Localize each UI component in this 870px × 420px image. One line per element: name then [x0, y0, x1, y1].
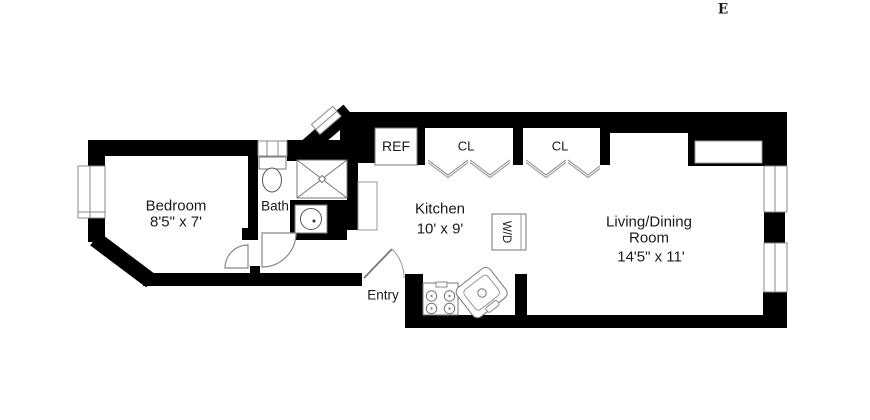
wall-left-of-ref — [340, 112, 377, 163]
window-living-1 — [764, 166, 787, 212]
window-bath — [258, 141, 287, 156]
refrigerator-label: REF — [382, 138, 410, 154]
wall-kitchen-living-stub — [515, 274, 527, 322]
compass-east-label: E — [718, 2, 728, 18]
wall-top-living — [600, 112, 787, 133]
kitchen-counter — [358, 182, 377, 230]
bath-label: Bath — [261, 199, 289, 214]
door-entry — [364, 249, 404, 278]
wall-top-kitchen — [340, 112, 610, 128]
wall-bedroom-top — [88, 140, 258, 156]
toilet — [263, 168, 282, 192]
living-dining-label-line1: Living/Dining — [606, 213, 692, 230]
kitchen-dims: 10' x 9' — [417, 220, 464, 237]
washer-dryer-label: W/D — [500, 221, 512, 243]
bedroom-dims: 8'5" x 7' — [150, 213, 202, 230]
wall-bedroom-left-top — [88, 140, 105, 168]
closet-left-label: CL — [458, 139, 475, 154]
shower — [297, 160, 347, 198]
wall-recess — [695, 141, 762, 163]
closet-right-label: CL — [552, 139, 569, 154]
wall-window-pier — [764, 212, 785, 244]
wall-bottom-main — [405, 315, 787, 328]
bedroom-label: Bedroom — [146, 197, 207, 214]
wall-divider-stub-upper — [242, 228, 258, 240]
living-dining-dims: 14'5" x 11' — [617, 248, 685, 265]
living-dining-label-line2: Room — [629, 229, 669, 246]
wall-divider-stub-lower — [250, 266, 260, 276]
door-bath — [262, 233, 296, 267]
kitchen-label: Kitchen — [415, 200, 465, 217]
door-bedroom — [225, 245, 248, 268]
wall-divider — [248, 156, 258, 230]
wall-closet-pier-1 — [417, 128, 425, 165]
entry-label: Entry — [367, 288, 399, 303]
wall-bath-right — [347, 157, 358, 230]
floor-plan-canvas: E Bedroom 8'5" x 7' Bath Kitchen 10' x 9… — [0, 0, 870, 420]
stove — [423, 282, 458, 315]
wall-closet-pier-2 — [513, 128, 523, 165]
bath-vanity — [259, 157, 286, 169]
wall-chamfer — [95, 239, 151, 281]
bath-sink — [295, 205, 327, 233]
window-bedroom — [78, 166, 105, 218]
wall-closet-pier-3 — [600, 128, 610, 165]
kitchen-sink — [454, 265, 511, 322]
window-living-2 — [764, 243, 787, 292]
floor-plan: E Bedroom 8'5" x 7' Bath Kitchen 10' x 9… — [0, 0, 870, 420]
